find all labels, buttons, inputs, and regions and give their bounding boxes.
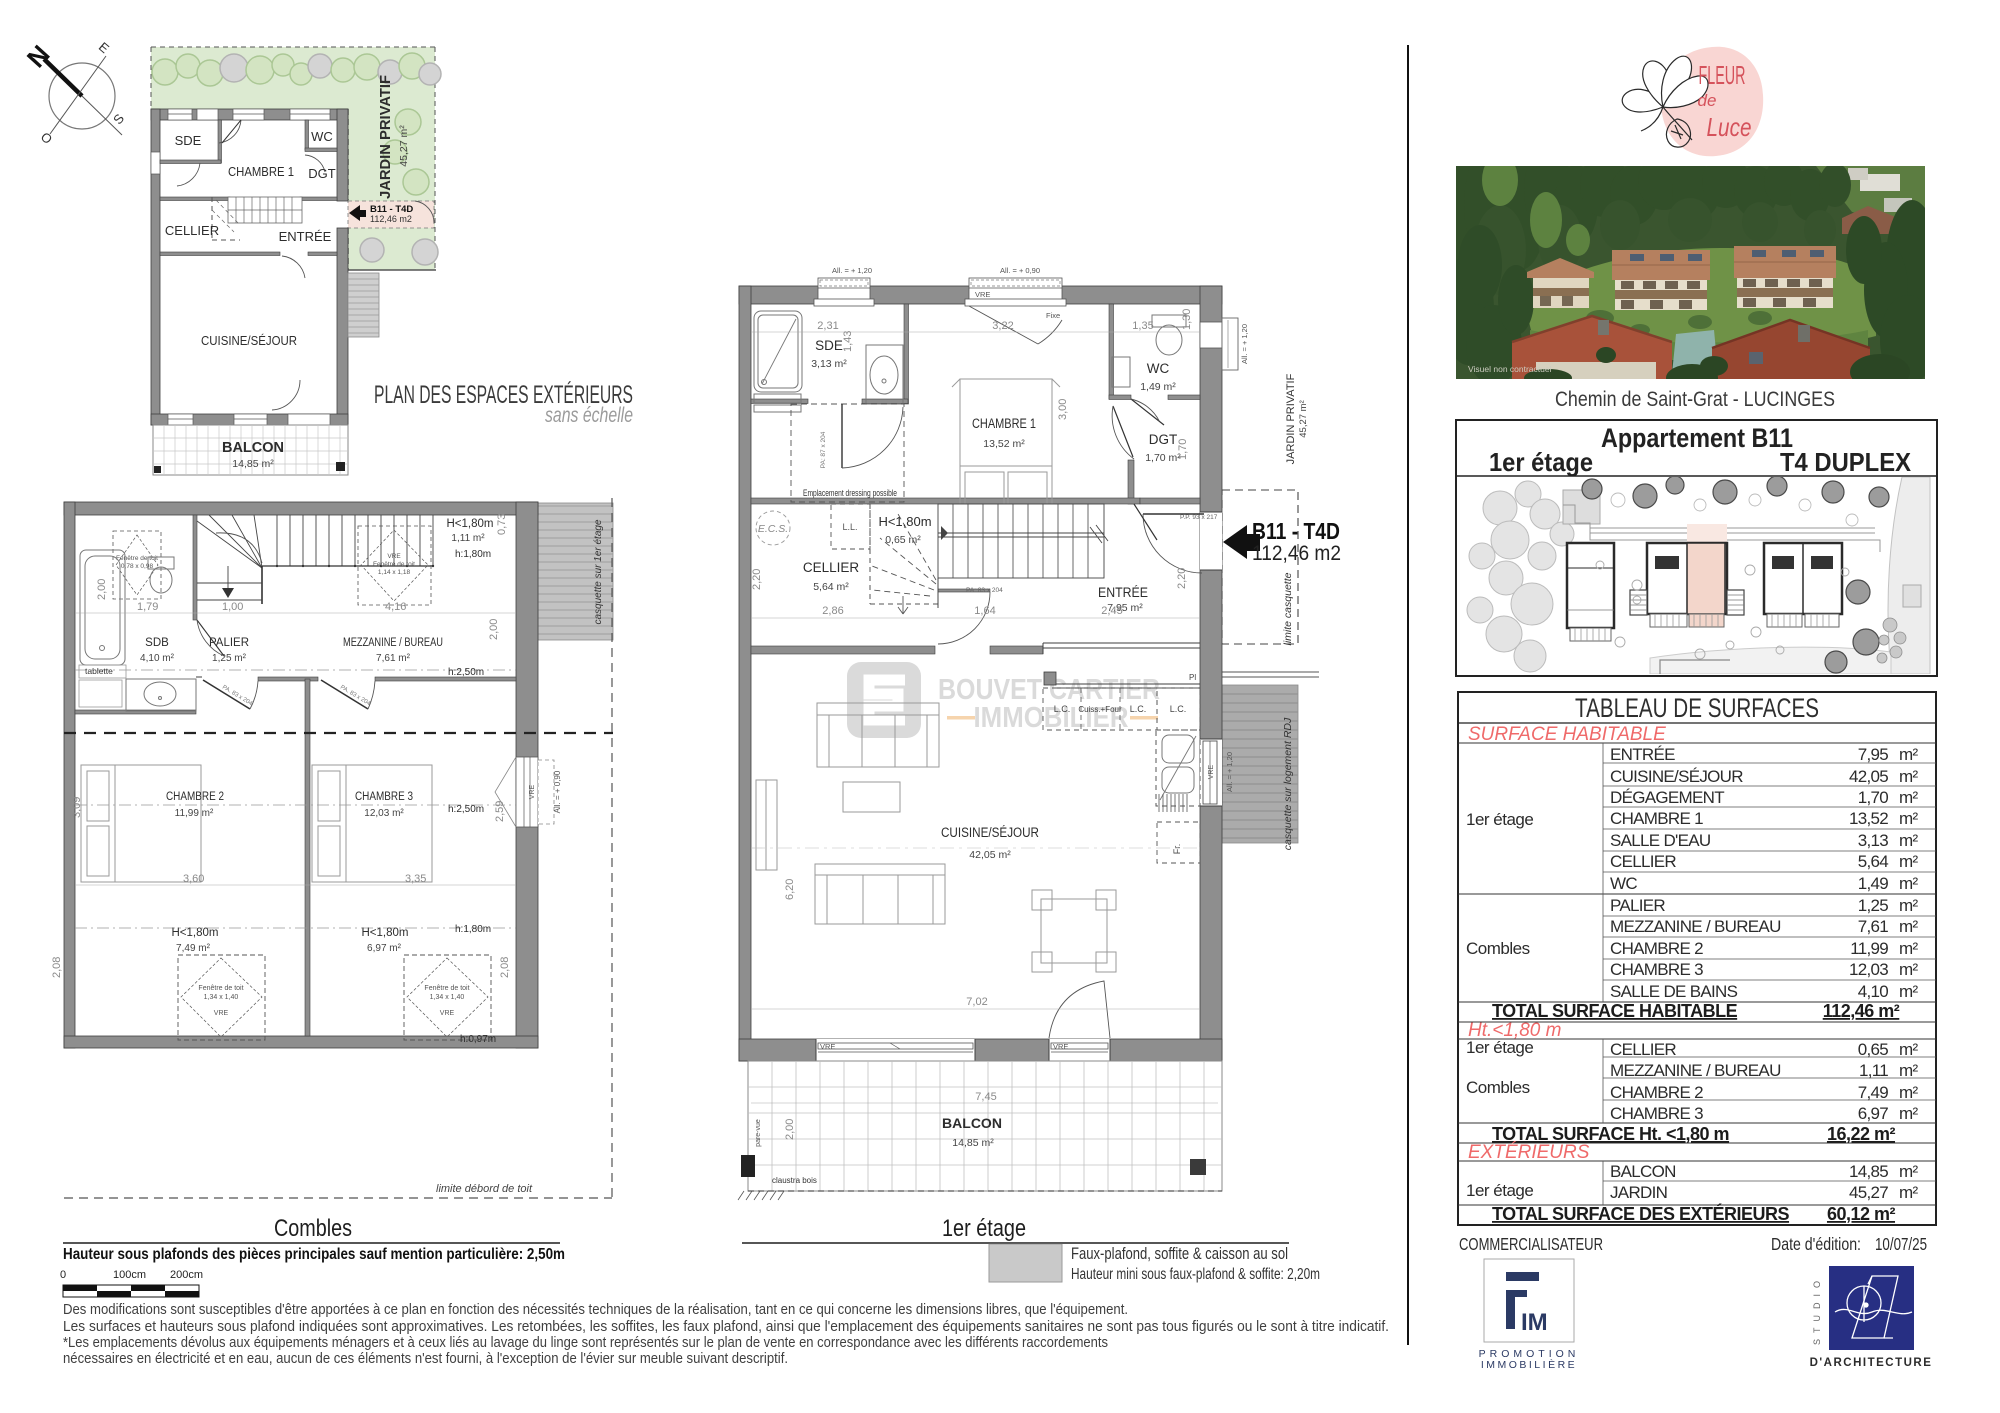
svg-text:PA: 87 x 204: PA: 87 x 204 <box>820 431 827 468</box>
svg-text:1,49 m²: 1,49 m² <box>1140 381 1176 393</box>
svg-text:0,65 m²: 0,65 m² <box>885 534 921 546</box>
svg-text:0,73: 0,73 <box>496 514 508 535</box>
svg-text:TOTAL SURFACE DES EXTÉRIEURS: TOTAL SURFACE DES EXTÉRIEURS <box>1492 1203 1790 1224</box>
svg-text:MEZZANINE / BUREAU: MEZZANINE / BUREAU <box>1610 917 1781 936</box>
svg-text:2,20: 2,20 <box>1176 568 1188 589</box>
svg-text:1er étage: 1er étage <box>1466 1181 1533 1200</box>
svg-text:SURFACE HABITABLE: SURFACE HABITABLE <box>1468 724 1666 745</box>
svg-text:1,14 x 1,18: 1,14 x 1,18 <box>378 569 411 576</box>
svg-text:m²: m² <box>1899 1061 1918 1080</box>
svg-text:VRE: VRE <box>440 1010 455 1017</box>
svg-text:m²: m² <box>1899 852 1918 871</box>
svg-text:14,85 m²: 14,85 m² <box>952 1137 994 1149</box>
svg-text:7,02: 7,02 <box>966 996 987 1008</box>
svg-text:7,95: 7,95 <box>1858 745 1889 764</box>
svg-text:VRE: VRE <box>387 553 401 560</box>
svg-text:Faux-plafond, soffite & caisso: Faux-plafond, soffite & caisson au sol <box>1071 1245 1288 1263</box>
svg-text:m²: m² <box>1899 917 1918 936</box>
svg-text:42,05 m²: 42,05 m² <box>969 849 1011 861</box>
svg-text:CHAMBRE 1: CHAMBRE 1 <box>972 416 1036 431</box>
svg-text:Fenêtre de toit: Fenêtre de toit <box>373 561 415 568</box>
svg-text:P.P. 93 x 217: P.P. 93 x 217 <box>1180 514 1218 521</box>
svg-text:CUISINE/SÉJOUR: CUISINE/SÉJOUR <box>201 333 297 348</box>
svg-text:10/07/25: 10/07/25 <box>1875 1234 1927 1254</box>
svg-text:2,31: 2,31 <box>817 320 838 332</box>
svg-text:h:0,97m: h:0,97m <box>460 1034 496 1045</box>
svg-text:casquette sur logement RDJ: casquette sur logement RDJ <box>1282 717 1294 850</box>
svg-text:5,64 m²: 5,64 m² <box>813 581 849 593</box>
svg-text:1,11: 1,11 <box>1859 1061 1888 1080</box>
svg-text:WC: WC <box>1610 874 1637 893</box>
svg-text:2,59: 2,59 <box>494 801 506 822</box>
svg-text:Ht.<1,80 m: Ht.<1,80 m <box>1468 1020 1561 1041</box>
svg-text:ENTRÉE: ENTRÉE <box>279 229 332 244</box>
svg-text:E: E <box>96 39 113 56</box>
svg-text:Des modifications sont suscept: Des modifications sont susceptibles d'êt… <box>63 1302 1128 1318</box>
svg-text:1,11 m²: 1,11 m² <box>451 533 485 544</box>
svg-text:L.C.: L.C. <box>1170 704 1187 714</box>
svg-text:0,65: 0,65 <box>1858 1040 1889 1059</box>
svg-text:m²: m² <box>1899 788 1918 807</box>
svg-text:limite casquette: limite casquette <box>1282 572 1294 645</box>
svg-text:JARDIN: JARDIN <box>1610 1183 1667 1202</box>
svg-text:CHAMBRE 3: CHAMBRE 3 <box>1610 1104 1703 1123</box>
svg-text:m²: m² <box>1899 1083 1918 1102</box>
svg-text:3,13 m²: 3,13 m² <box>811 358 847 370</box>
svg-text:1,30: 1,30 <box>1181 309 1193 330</box>
svg-text:SALLE D'EAU: SALLE D'EAU <box>1610 831 1710 850</box>
svg-text:D'ARCHITECTURE: D'ARCHITECTURE <box>1810 1357 1933 1369</box>
svg-text:L.L.: L.L. <box>842 522 857 532</box>
svg-text:WC: WC <box>311 129 333 144</box>
svg-text:m²: m² <box>1899 874 1918 893</box>
svg-text:casquette sur 1er étage: casquette sur 1er étage <box>593 519 604 625</box>
svg-text:TOTAL SURFACE Ht. <1,80 m: TOTAL SURFACE Ht. <1,80 m <box>1492 1124 1729 1144</box>
svg-text:CELLIER: CELLIER <box>165 223 219 238</box>
svg-text:T4 DUPLEX: T4 DUPLEX <box>1780 447 1912 477</box>
svg-text:Combles: Combles <box>274 1215 352 1242</box>
svg-text:1,70 m²: 1,70 m² <box>1145 452 1181 464</box>
svg-text:Visuel non contractuel: Visuel non contractuel <box>1468 364 1552 374</box>
svg-text:3,13: 3,13 <box>1858 831 1889 850</box>
svg-text:13,52: 13,52 <box>1849 809 1888 828</box>
svg-text:SDB: SDB <box>145 637 169 649</box>
svg-text:All. = + 1,20: All. = + 1,20 <box>832 266 872 275</box>
svg-text:COMMERCIALISATEUR: COMMERCIALISATEUR <box>1459 1234 1603 1254</box>
svg-text:1,43: 1,43 <box>842 331 854 352</box>
svg-text:JARDIN PRIVATIF: JARDIN PRIVATIF <box>1285 373 1297 464</box>
svg-text:m²: m² <box>1899 767 1918 786</box>
svg-text:SDE: SDE <box>175 133 202 148</box>
svg-text:All. = + 0,90: All. = + 0,90 <box>553 770 562 813</box>
svg-text:11,99 m²: 11,99 m² <box>175 808 214 819</box>
svg-text:14,85 m²: 14,85 m² <box>232 458 274 470</box>
svg-text:1,64: 1,64 <box>974 605 995 617</box>
svg-text:h:1,80m: h:1,80m <box>455 549 491 560</box>
svg-text:S: S <box>110 111 127 128</box>
svg-text:Fenêtre de toit: Fenêtre de toit <box>424 985 469 992</box>
svg-text:JARDIN PRIVATIF: JARDIN PRIVATIF <box>377 75 394 199</box>
svg-text:60,12 m²: 60,12 m² <box>1827 1204 1896 1224</box>
svg-text:7,45: 7,45 <box>975 1091 996 1103</box>
svg-text:CUISINE/SÉJOUR: CUISINE/SÉJOUR <box>1610 767 1743 786</box>
svg-text:6,97 m²: 6,97 m² <box>367 943 402 954</box>
svg-text:WC: WC <box>1147 361 1170 376</box>
svg-text:0: 0 <box>60 1269 66 1281</box>
svg-text:pare-vue: pare-vue <box>755 1119 762 1147</box>
svg-text:4,10: 4,10 <box>1858 982 1889 1001</box>
svg-text:BALCON: BALCON <box>942 1115 1002 1131</box>
svg-text:3,60: 3,60 <box>183 873 204 885</box>
svg-text:m²: m² <box>1899 745 1918 764</box>
svg-text:DGT: DGT <box>308 166 336 181</box>
svg-text:H<1,80m: H<1,80m <box>172 927 219 939</box>
svg-text:CELLIER: CELLIER <box>1610 1040 1676 1059</box>
svg-text:PA: 83 x 204: PA: 83 x 204 <box>966 587 1003 594</box>
svg-text:7,61 m²: 7,61 m² <box>376 653 411 664</box>
svg-text:SDE: SDE <box>815 338 843 353</box>
svg-text:112,46 m²: 112,46 m² <box>1823 1001 1900 1021</box>
svg-text:STUDIO: STUDIO <box>1812 1275 1822 1345</box>
svg-text:3,00: 3,00 <box>1057 399 1069 420</box>
svg-text:2,08: 2,08 <box>51 957 63 978</box>
svg-text:BALCON: BALCON <box>1610 1162 1676 1181</box>
svg-text:CUISINE/SÉJOUR: CUISINE/SÉJOUR <box>941 825 1039 840</box>
svg-text:CHAMBRE 1: CHAMBRE 1 <box>228 164 294 179</box>
svg-text:3,22: 3,22 <box>992 320 1013 332</box>
svg-text:1,00: 1,00 <box>222 601 243 613</box>
svg-text:TOTAL SURFACE HABITABLE: TOTAL SURFACE HABITABLE <box>1492 1001 1738 1021</box>
svg-text:CHAMBRE 3: CHAMBRE 3 <box>1610 960 1703 979</box>
svg-text:CHAMBRE 2: CHAMBRE 2 <box>1610 1083 1703 1102</box>
svg-text:E.C.S.: E.C.S. <box>758 523 788 535</box>
svg-text:3,35: 3,35 <box>405 873 426 885</box>
svg-text:All. = + 1,20: All. = + 1,20 <box>1240 324 1249 364</box>
svg-text:m²: m² <box>1899 831 1918 850</box>
svg-text:m²: m² <box>1899 982 1918 1001</box>
svg-text:m²: m² <box>1899 960 1918 979</box>
svg-text:CHAMBRE 2: CHAMBRE 2 <box>1610 939 1703 958</box>
svg-text:1,25: 1,25 <box>1858 896 1889 915</box>
svg-text:Hauteur mini sous faux-plafond: Hauteur mini sous faux-plafond & soffite… <box>1071 1266 1320 1283</box>
svg-text:de: de <box>1698 91 1717 110</box>
svg-text:EXTÉRIEURS: EXTÉRIEURS <box>1468 1142 1590 1163</box>
svg-text:1,34 x 1,40: 1,34 x 1,40 <box>430 994 465 1001</box>
svg-text:DGT: DGT <box>1149 432 1178 447</box>
svg-text:h:2,50m: h:2,50m <box>448 667 484 678</box>
svg-text:112,46 m2: 112,46 m2 <box>1252 542 1341 565</box>
svg-text:1,25 m²: 1,25 m² <box>212 653 247 664</box>
svg-text:45,27 m²: 45,27 m² <box>398 125 410 167</box>
svg-text:FLEUR: FLEUR <box>1699 60 1746 90</box>
svg-text:112,46 m2: 112,46 m2 <box>370 214 412 224</box>
svg-text:O: O <box>38 129 55 147</box>
svg-text:Emplacement dressing possible: Emplacement dressing possible <box>803 488 897 498</box>
svg-text:2,00: 2,00 <box>488 619 500 640</box>
svg-text:H<1,80m: H<1,80m <box>447 518 494 530</box>
svg-text:CHAMBRE 2: CHAMBRE 2 <box>166 791 224 803</box>
svg-text:SALLE DE BAINS: SALLE DE BAINS <box>1610 982 1738 1001</box>
svg-text:7,61: 7,61 <box>1858 917 1889 936</box>
svg-text:2,20: 2,20 <box>751 569 763 590</box>
svg-text:Fr.: Fr. <box>1172 844 1182 855</box>
svg-text:3,09: 3,09 <box>71 797 83 818</box>
svg-text:Fenêtre de toit: Fenêtre de toit <box>198 985 243 992</box>
svg-text:VRE: VRE <box>214 1010 229 1017</box>
svg-text:m²: m² <box>1899 939 1918 958</box>
svg-text:Luce: Luce <box>1707 112 1752 142</box>
svg-text:2,86: 2,86 <box>822 605 843 617</box>
svg-text:16,22 m²: 16,22 m² <box>1827 1124 1896 1144</box>
svg-text:Pl: Pl <box>1189 673 1196 682</box>
svg-text:CHAMBRE 1: CHAMBRE 1 <box>1610 809 1703 828</box>
svg-text:Fenêtre de toit: Fenêtre de toit <box>116 555 158 562</box>
svg-text:MEZZANINE / BUREAU: MEZZANINE / BUREAU <box>1610 1061 1781 1080</box>
svg-text:claustra bois: claustra bois <box>772 1176 817 1185</box>
svg-text:*Les emplacements dévolus aux: *Les emplacements dévolus aux équipement… <box>63 1335 1108 1351</box>
svg-text:Combles: Combles <box>1466 939 1530 958</box>
svg-text:L.C.: L.C. <box>1130 704 1147 714</box>
svg-text:B11 - T4D: B11 - T4D <box>1252 518 1340 544</box>
svg-text:PALIER: PALIER <box>209 637 249 649</box>
svg-text:1er étage: 1er étage <box>1489 447 1593 477</box>
svg-text:7,49 m²: 7,49 m² <box>176 943 211 954</box>
svg-text:1er étage: 1er étage <box>942 1215 1026 1242</box>
svg-text:1,49: 1,49 <box>1858 874 1889 893</box>
svg-text:limite débord de toit: limite débord de toit <box>436 1183 533 1195</box>
svg-text:h:1,80m: h:1,80m <box>455 924 491 935</box>
svg-text:VRE: VRE <box>1208 764 1215 779</box>
svg-text:All. = + 0,90: All. = + 0,90 <box>1000 266 1040 275</box>
svg-text:TABLEAU DE SURFACES: TABLEAU DE SURFACES <box>1575 693 1819 723</box>
svg-text:1,34 x 1,40: 1,34 x 1,40 <box>204 994 239 1001</box>
svg-text:sans échelle: sans échelle <box>545 404 633 427</box>
svg-text:L.C.: L.C. <box>1054 704 1071 714</box>
svg-text:m²: m² <box>1899 1104 1918 1123</box>
svg-text:1,35: 1,35 <box>1132 320 1153 332</box>
svg-text:PA. 83 x 204: PA. 83 x 204 <box>221 685 254 708</box>
svg-text:Chemin de Saint-Grat - LUCINGE: Chemin de Saint-Grat - LUCINGES <box>1555 388 1835 411</box>
svg-text:2,08: 2,08 <box>499 957 511 978</box>
svg-text:6,20: 6,20 <box>784 879 796 900</box>
svg-text:CELLIER: CELLIER <box>803 560 860 575</box>
svg-text:Fixe: Fixe <box>1046 311 1060 320</box>
svg-text:VRE: VRE <box>529 784 536 799</box>
svg-text:6,97: 6,97 <box>1858 1104 1889 1123</box>
svg-text:PA. 83 x 204: PA. 83 x 204 <box>339 685 372 708</box>
svg-text:100cm: 100cm <box>113 1269 146 1281</box>
svg-text:m²: m² <box>1899 896 1918 915</box>
svg-text:m²: m² <box>1899 1162 1918 1181</box>
svg-text:tablette: tablette <box>85 666 113 676</box>
svg-text:ENTRÉE: ENTRÉE <box>1610 745 1675 764</box>
svg-text:1er étage: 1er étage <box>1466 810 1533 829</box>
svg-text:m²: m² <box>1899 1183 1918 1202</box>
svg-text:All. = + 1,20: All. = + 1,20 <box>1225 752 1234 792</box>
svg-text:h:2,50m: h:2,50m <box>448 804 484 815</box>
svg-text:Combles: Combles <box>1466 1078 1530 1097</box>
svg-text:nécessaires en électricité et: nécessaires en électricité et en eau, au… <box>63 1351 788 1367</box>
svg-text:m²: m² <box>1899 1040 1918 1059</box>
svg-text:H<1,80m: H<1,80m <box>878 514 931 529</box>
svg-text:4,10 m²: 4,10 m² <box>140 653 175 664</box>
svg-text:1,70: 1,70 <box>1858 788 1889 807</box>
svg-text:12,03: 12,03 <box>1849 960 1888 979</box>
svg-text:45,27: 45,27 <box>1849 1183 1888 1202</box>
svg-text:1,79: 1,79 <box>137 601 158 613</box>
svg-text:7,49: 7,49 <box>1858 1083 1889 1102</box>
svg-text:14,85: 14,85 <box>1849 1162 1888 1181</box>
svg-text:ENTRÉE: ENTRÉE <box>1098 585 1148 600</box>
svg-text:42,05: 42,05 <box>1849 767 1888 786</box>
svg-text:CELLIER: CELLIER <box>1610 852 1676 871</box>
svg-text:200cm: 200cm <box>170 1269 203 1281</box>
svg-text:DÉGAGEMENT: DÉGAGEMENT <box>1610 788 1724 807</box>
svg-text:2,00: 2,00 <box>96 579 108 600</box>
svg-text:12,03 m²: 12,03 m² <box>364 808 404 819</box>
svg-text:13,52 m²: 13,52 m² <box>983 438 1025 450</box>
svg-text:Les surfaces et hauteurs sous: Les surfaces et hauteurs sous plafond in… <box>63 1319 1389 1335</box>
svg-text:VRE: VRE <box>975 290 990 299</box>
svg-text:5,64: 5,64 <box>1858 852 1889 871</box>
svg-text:11,99: 11,99 <box>1850 939 1888 958</box>
svg-text:4,16: 4,16 <box>385 601 406 613</box>
svg-text:CHAMBRE 3: CHAMBRE 3 <box>355 791 413 803</box>
svg-text:m²: m² <box>1899 809 1918 828</box>
svg-text:1,70: 1,70 <box>1177 439 1189 460</box>
svg-text:Hauteur sous plafonds des pièc: Hauteur sous plafonds des pièces princip… <box>63 1246 565 1263</box>
svg-text:VRE: VRE <box>1053 1042 1068 1051</box>
svg-text:IMMOBILIÈRE: IMMOBILIÈRE <box>1481 1358 1577 1371</box>
svg-text:Cuiss.+Four: Cuiss.+Four <box>1078 705 1122 714</box>
svg-text:Appartement B11: Appartement B11 <box>1601 423 1793 453</box>
svg-text:VRE: VRE <box>820 1042 835 1051</box>
svg-text:2,00: 2,00 <box>784 1119 796 1140</box>
svg-text:PALIER: PALIER <box>1610 896 1665 915</box>
svg-text:IM: IM <box>1521 1309 1548 1336</box>
svg-text:Date d'édition:: Date d'édition: <box>1771 1234 1861 1254</box>
svg-text:45,27 m²: 45,27 m² <box>1298 400 1309 438</box>
svg-text:MEZZANINE / BUREAU: MEZZANINE / BUREAU <box>343 637 443 649</box>
svg-text:H<1,80m: H<1,80m <box>362 927 409 939</box>
svg-text:2,45: 2,45 <box>1101 605 1122 617</box>
svg-text:BALCON: BALCON <box>222 440 284 456</box>
